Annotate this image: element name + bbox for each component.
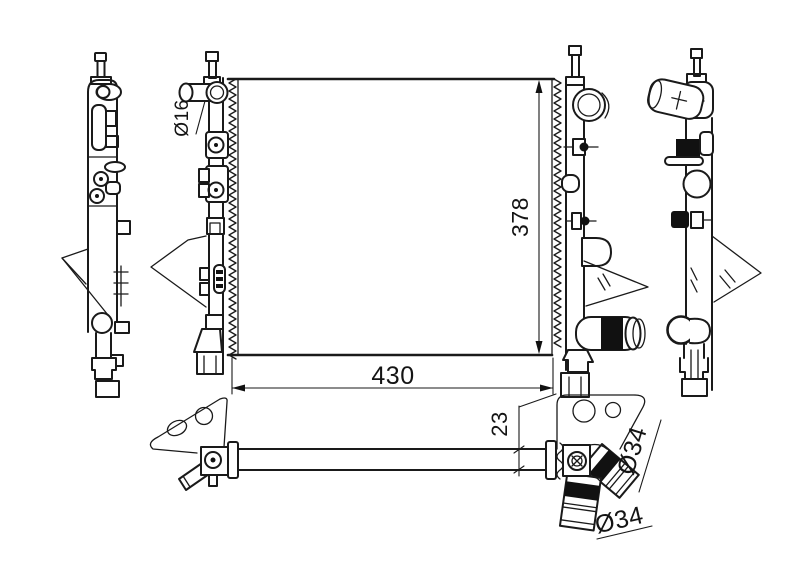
- bottom-view: [150, 395, 644, 530]
- side-view-far-left: [62, 53, 130, 397]
- core-width-label: 430: [371, 362, 414, 390]
- inlet-pipe-end: [180, 84, 193, 102]
- dimension-core-height: 378: [507, 80, 543, 354]
- side-view-far-right: [646, 49, 761, 396]
- outlet-lower-label: Ø34: [592, 501, 646, 539]
- radiator-drawing: 430 378 Ø16 23 Ø34 Ø34: [0, 0, 800, 577]
- dimension-inlet-diameter: Ø16: [172, 99, 205, 136]
- pipe-offset-label: 23: [487, 411, 512, 436]
- dimension-core-width: 430: [232, 358, 553, 394]
- dimension-outlet-lower: Ø34: [592, 501, 652, 539]
- inlet-diameter-label: Ø16: [172, 99, 193, 136]
- core-height-label: 378: [507, 197, 533, 237]
- serrated-core-edge-left: [229, 79, 236, 359]
- outlet-pipe-side: [576, 317, 645, 350]
- outlet-upper-label: Ø34: [612, 423, 653, 478]
- right-tank-side-profile: [561, 46, 648, 397]
- serrated-core-edge-right: [554, 79, 561, 347]
- radiator-technical-drawing-page: 430 378 Ø16 23 Ø34 Ø34: [0, 0, 800, 577]
